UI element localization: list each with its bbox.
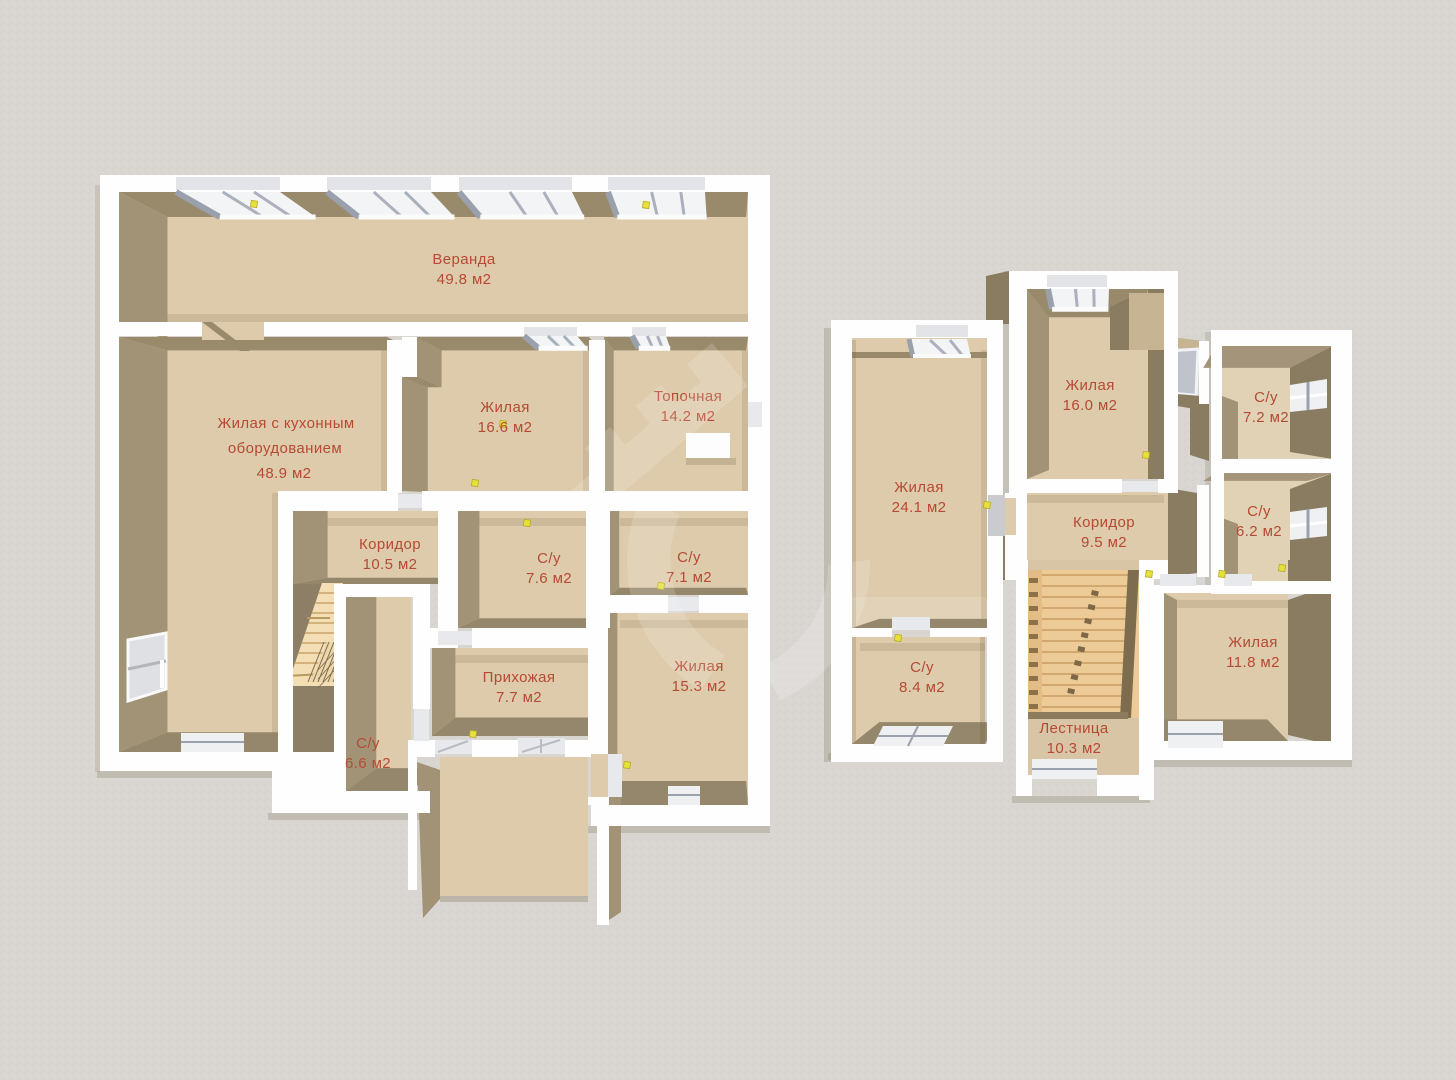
- svg-text:С/у: С/у: [677, 549, 701, 566]
- svg-text:7.2 м2: 7.2 м2: [1243, 409, 1289, 426]
- svg-text:С/у: С/у: [910, 659, 934, 676]
- svg-text:7.7 м2: 7.7 м2: [496, 689, 542, 706]
- svg-text:Жилая: Жилая: [1228, 634, 1277, 651]
- svg-text:Лестница: Лестница: [1039, 720, 1109, 737]
- svg-text:Прихожая: Прихожая: [483, 669, 556, 686]
- svg-text:Коридор: Коридор: [1073, 514, 1135, 531]
- svg-text:16.0 м2: 16.0 м2: [1063, 397, 1118, 414]
- svg-text:9.5 м2: 9.5 м2: [1081, 534, 1127, 551]
- svg-text:Жилая: Жилая: [480, 399, 529, 416]
- svg-text:11.8 м2: 11.8 м2: [1226, 654, 1280, 671]
- svg-text:49.8 м2: 49.8 м2: [437, 271, 492, 288]
- svg-text:Жилая: Жилая: [894, 479, 943, 496]
- svg-text:оборудованием: оборудованием: [228, 440, 342, 457]
- svg-text:24.1 м2: 24.1 м2: [892, 499, 947, 516]
- svg-text:10.3 м2: 10.3 м2: [1047, 740, 1102, 757]
- svg-text:Жилая с кухонным: Жилая с кухонным: [217, 415, 354, 432]
- svg-text:С/у: С/у: [1254, 389, 1278, 406]
- svg-text:С/у: С/у: [1247, 503, 1271, 520]
- svg-text:48.9 м2: 48.9 м2: [257, 465, 312, 482]
- svg-text:Веранда: Веранда: [432, 251, 495, 268]
- svg-text:10.5 м2: 10.5 м2: [363, 556, 418, 573]
- svg-text:7.6 м2: 7.6 м2: [526, 570, 572, 587]
- svg-text:16.6 м2: 16.6 м2: [478, 419, 533, 436]
- svg-text:6.6 м2: 6.6 м2: [345, 755, 391, 772]
- svg-text:6.2 м2: 6.2 м2: [1236, 523, 1282, 540]
- svg-text:С/у: С/у: [356, 735, 380, 752]
- svg-text:С/у: С/у: [537, 550, 561, 567]
- svg-text:Коридор: Коридор: [359, 536, 421, 553]
- svg-text:Жилая: Жилая: [1065, 377, 1114, 394]
- svg-text:8.4 м2: 8.4 м2: [899, 679, 945, 696]
